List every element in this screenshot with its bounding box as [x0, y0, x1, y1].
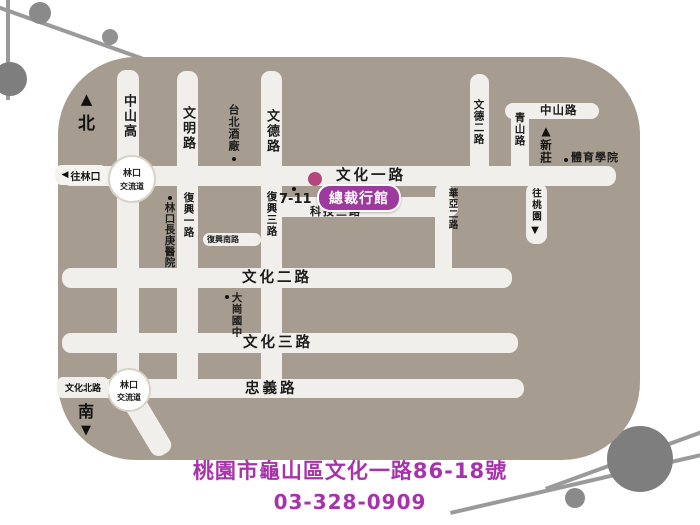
up-arrow-icon: ▲: [541, 124, 550, 138]
phone-text: 03-328-0909: [0, 490, 700, 514]
direction-to-linkou: ◀ 往林口: [55, 165, 107, 185]
direction-to-xinzhuang: ▲ 新莊: [538, 124, 554, 164]
interchange-line2: 交流道: [117, 392, 141, 403]
to-linkou-label: 往林口: [70, 168, 100, 183]
label-huaya2-road: 華亞二路: [447, 188, 457, 230]
address-text: 桃園市龜山區文化一路86-18號: [0, 455, 700, 485]
compass-north: ▲ 北: [78, 90, 95, 134]
to-xinzhuang-label: 新莊: [538, 139, 554, 164]
down-arrow-icon: ▼: [531, 225, 539, 236]
label-wenhua3-road: 文化三路: [243, 336, 313, 351]
label-wenhua2-road: 文化二路: [242, 271, 312, 286]
label-changgung-hospital: 林口長庚醫院: [164, 202, 175, 268]
dagang-school-dot: [225, 295, 229, 299]
label-taipei-brewery: 台北酒廠: [228, 104, 239, 152]
venue-badge: 總裁行館: [317, 184, 401, 212]
compass-north-label: 北: [78, 109, 95, 134]
decor-circle-3: [0, 62, 27, 96]
label-zhongyi-road: 忠義路: [245, 382, 298, 397]
venue-location-dot: [308, 172, 322, 186]
label-zhongshan-road: 中山路: [540, 105, 578, 117]
label-fuxing-south-road: 復興南路: [207, 236, 239, 244]
label-seven-eleven: 7-11: [279, 193, 312, 206]
venue-name: 總裁行館: [329, 188, 389, 208]
south-arrow-icon: ▼: [81, 423, 91, 438]
label-fuxing3-road: 復興三路: [266, 191, 277, 237]
decor-circle-1: [29, 2, 51, 24]
interchange-line2: 交流道: [120, 181, 144, 192]
taipei-brewery-dot: [232, 157, 236, 161]
label-wenming-road: 文明路: [181, 106, 194, 151]
map-screenshot: ▲ 北 南 ▼ ◀ 往林口 林口 交流道 林口 交流道 中山高 文明路 復興一路…: [0, 0, 700, 525]
to-taoyuan-label: 往桃園: [528, 188, 542, 223]
label-wenhua-north-road: 文化北路: [57, 377, 109, 398]
sports-college-dot: [564, 158, 568, 162]
seven-eleven-dot: [292, 187, 296, 191]
linkou-interchange-top: 林口 交流道: [108, 155, 156, 203]
interchange-line1: 林口: [123, 166, 141, 179]
label-dagang-school: 大崗國中: [231, 292, 242, 338]
north-arrow-icon: ▲: [81, 90, 93, 108]
label-sports-college: 體育學院: [571, 152, 619, 163]
footer: 桃園市龜山區文化一路86-18號 03-328-0909: [0, 455, 700, 514]
interchange-line1: 林口: [120, 378, 138, 391]
decor-line-topleft-diagonal: [0, 4, 148, 62]
compass-south-label: 南: [78, 398, 94, 422]
label-wende2-road: 文德二路: [473, 99, 484, 145]
linkou-interchange-bottom: 林口 交流道: [107, 368, 151, 412]
changgung-dot: [168, 196, 172, 200]
wenhua-north-text: 文化北路: [65, 381, 101, 394]
left-arrow-icon: ◀: [62, 170, 69, 180]
decor-circle-2: [102, 29, 118, 45]
label-wende-road: 文德路: [265, 109, 278, 154]
label-qingshan-road: 青山路: [514, 112, 525, 147]
compass-south: 南 ▼: [78, 398, 94, 438]
label-fuxing1-road: 復興一路: [183, 192, 194, 238]
direction-to-taoyuan: 往桃園 ▼: [528, 188, 542, 236]
label-zhongshan-highway: 中山高: [122, 94, 135, 139]
label-wenhua1-road: 文化一路: [336, 169, 406, 184]
